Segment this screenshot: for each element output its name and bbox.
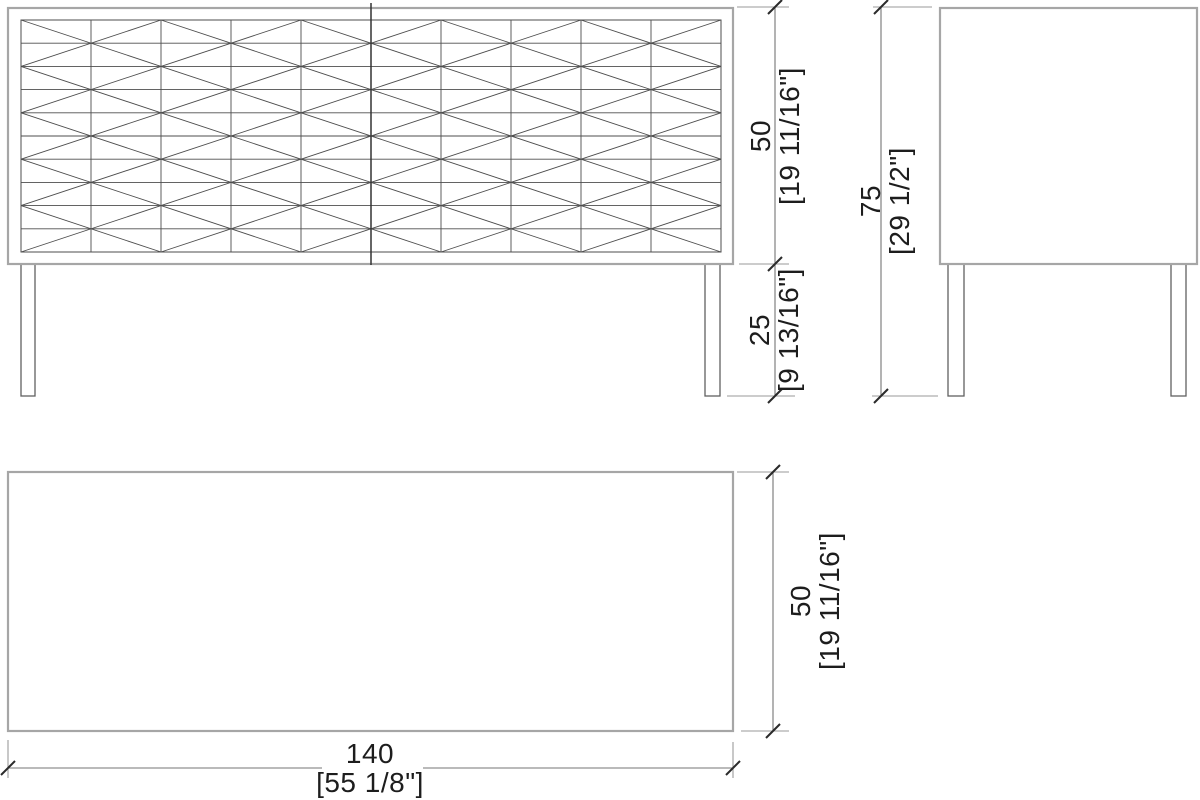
extension-lines [8, 7, 938, 778]
tick-marks [1, 0, 888, 775]
front-left-leg [21, 264, 35, 396]
front-right-leg [705, 264, 720, 396]
side-front-leg [948, 264, 964, 396]
dimension-graphics [1, 0, 938, 778]
plan-view [8, 472, 733, 731]
drawing-linework [0, 0, 1200, 800]
dimension-lines [8, 7, 881, 768]
side-body-outline [940, 8, 1197, 264]
front-view [8, 3, 733, 396]
plan-outline [8, 472, 733, 731]
side-back-leg [1171, 264, 1186, 396]
technical-drawing-canvas: 50 [19 11/16"] 25 [9 13/16"] 75 [29 1/2"… [0, 0, 1200, 800]
side-view [940, 8, 1197, 396]
